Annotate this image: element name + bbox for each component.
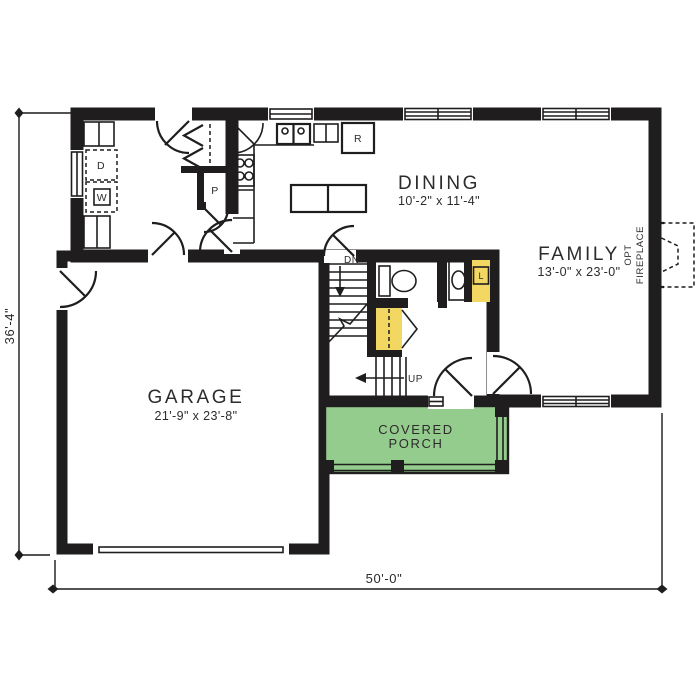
toilet-bowl — [392, 271, 416, 292]
dining-label: DINING — [398, 173, 480, 194]
fireplace-label-line2: FIREPLACE — [635, 226, 646, 284]
family-dims: 13'-0" x 23'-0" — [538, 265, 621, 279]
floor-plan-canvas: 36'-4" 50'-0" — [0, 0, 700, 700]
vanity-sink — [452, 271, 465, 289]
dimension-lines: 36'-4" 50'-0" — [2, 108, 668, 594]
overall-width-dimension: 50'-0" — [366, 571, 403, 586]
linen-label: L — [478, 271, 483, 281]
toilet-tank — [379, 266, 390, 296]
porch-post — [495, 404, 508, 417]
burner — [245, 159, 253, 167]
porch-label-line2: PORCH — [389, 436, 444, 451]
dryer-label: D — [97, 160, 105, 172]
stairs-up-label: UP — [408, 374, 423, 385]
overall-depth-dimension: 36'-4" — [2, 308, 17, 345]
burner — [245, 172, 253, 180]
laundry-mud-area — [77, 114, 232, 256]
refrigerator-label: R — [354, 133, 362, 145]
dining-dims: 10'-2" x 11'-4" — [398, 194, 480, 208]
stairs-down-treads — [330, 264, 368, 336]
porch-post — [321, 460, 334, 473]
dim-marker — [657, 585, 668, 594]
dim-marker — [48, 585, 59, 594]
stair-break-line — [326, 303, 368, 345]
family-label: FAMILY — [538, 244, 620, 265]
porch-post — [391, 460, 404, 473]
porch-post — [495, 460, 508, 473]
pantry-label: P — [211, 185, 219, 197]
powder-room — [376, 258, 490, 310]
hall-closet — [376, 307, 402, 350]
dim-marker — [15, 550, 24, 561]
porch-label-line1: COVERED — [378, 422, 454, 437]
dim-marker — [15, 108, 24, 119]
garage-label: GARAGE — [148, 387, 245, 408]
floor-plan-page: 36'-4" 50'-0" — [0, 0, 700, 700]
stairs-up-treads — [376, 357, 406, 401]
garage-dims: 21'-9" x 23'-8" — [155, 409, 238, 423]
garage-door — [93, 543, 289, 556]
stairs-down-label: DN — [344, 255, 359, 266]
room-shells — [62, 114, 655, 549]
fireplace-label-line1: OPT — [623, 244, 634, 265]
stair-hall — [326, 256, 417, 401]
washer-label: W — [97, 192, 107, 204]
up-arrow — [355, 373, 366, 383]
